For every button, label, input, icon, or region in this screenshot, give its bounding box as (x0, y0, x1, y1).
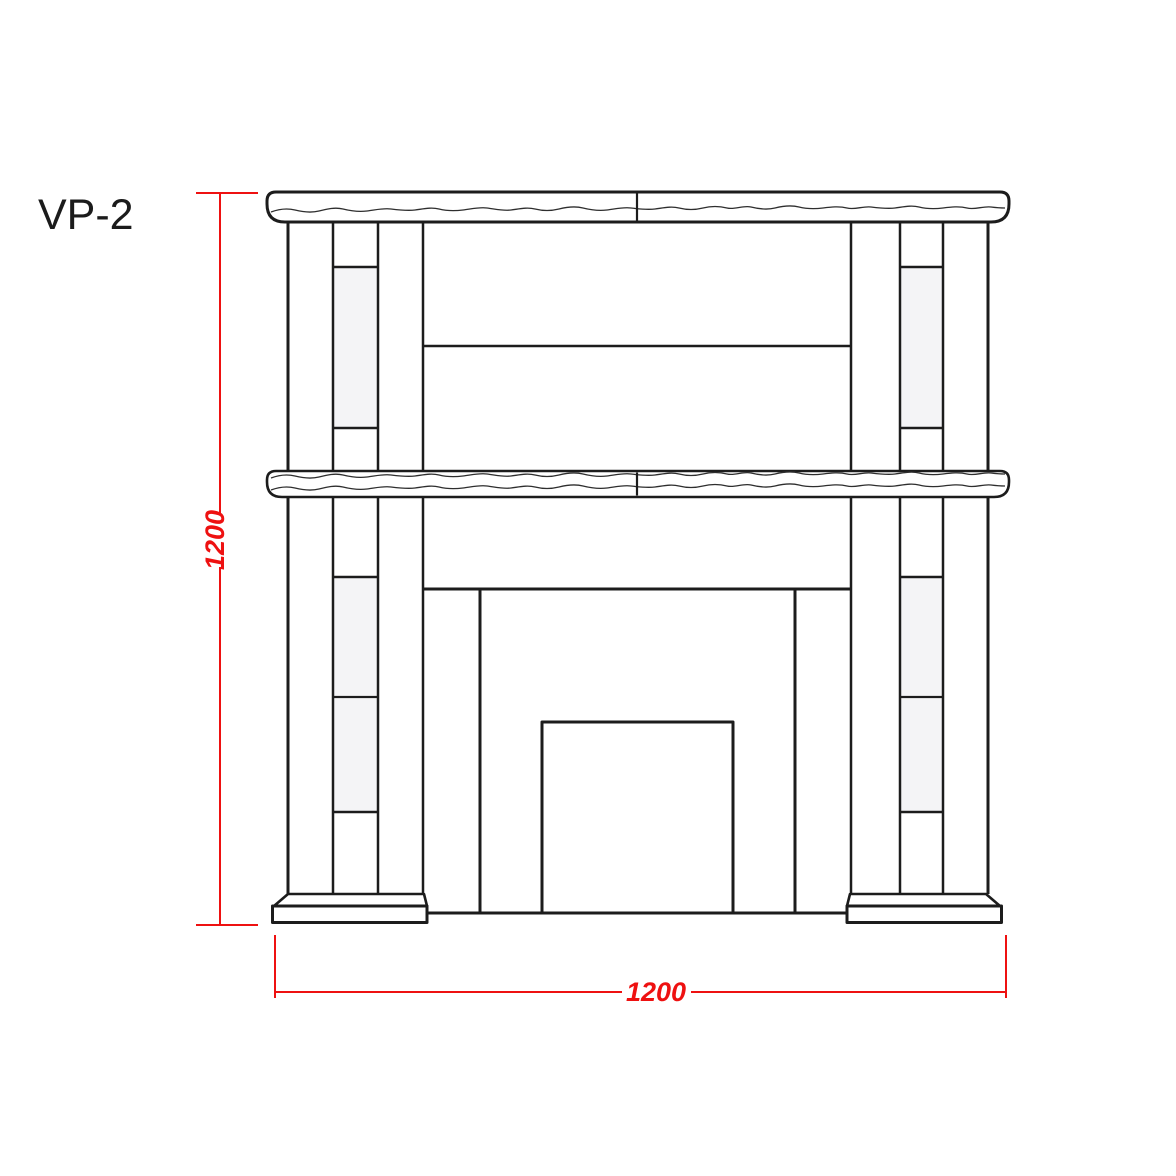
left-plinth (273, 894, 428, 923)
drawing-page: 1200 1200 VP-2 (0, 0, 1176, 1176)
upper-left-column (288, 222, 423, 471)
horizontal-dimension: 1200 (275, 935, 1006, 1007)
middle-shelf (267, 471, 1009, 497)
upper-right-column-panel (902, 269, 942, 427)
lower-right-column-panel-upper (902, 579, 942, 696)
vertical-dimension: 1200 (196, 193, 258, 925)
right-plinth (847, 894, 1002, 923)
top-shelf (267, 192, 1009, 222)
mantel-lower-section (273, 497, 1002, 923)
horizontal-dimension-value: 1200 (626, 977, 686, 1007)
vertical-dimension-value: 1200 (200, 510, 230, 570)
overmantel-section (288, 222, 988, 471)
fireplace-surround (424, 589, 850, 913)
fireplace-elevation-drawing: 1200 1200 VP-2 (0, 0, 1176, 1176)
lower-left-column-panel-lower (335, 699, 377, 811)
drawing-title: VP-2 (38, 191, 134, 239)
left-plinth-bevel (274, 894, 427, 906)
right-plinth-bevel (847, 894, 1000, 906)
right-plinth-base (847, 906, 1002, 923)
upper-left-column-panel (335, 269, 377, 427)
left-plinth-base (273, 906, 428, 923)
firebox-opening (542, 722, 733, 913)
upper-right-column (851, 222, 988, 471)
lower-right-column-panel-lower (902, 699, 942, 811)
lower-right-column (851, 497, 988, 894)
lower-left-column-panel-upper (335, 579, 377, 696)
lower-left-column (288, 497, 423, 894)
